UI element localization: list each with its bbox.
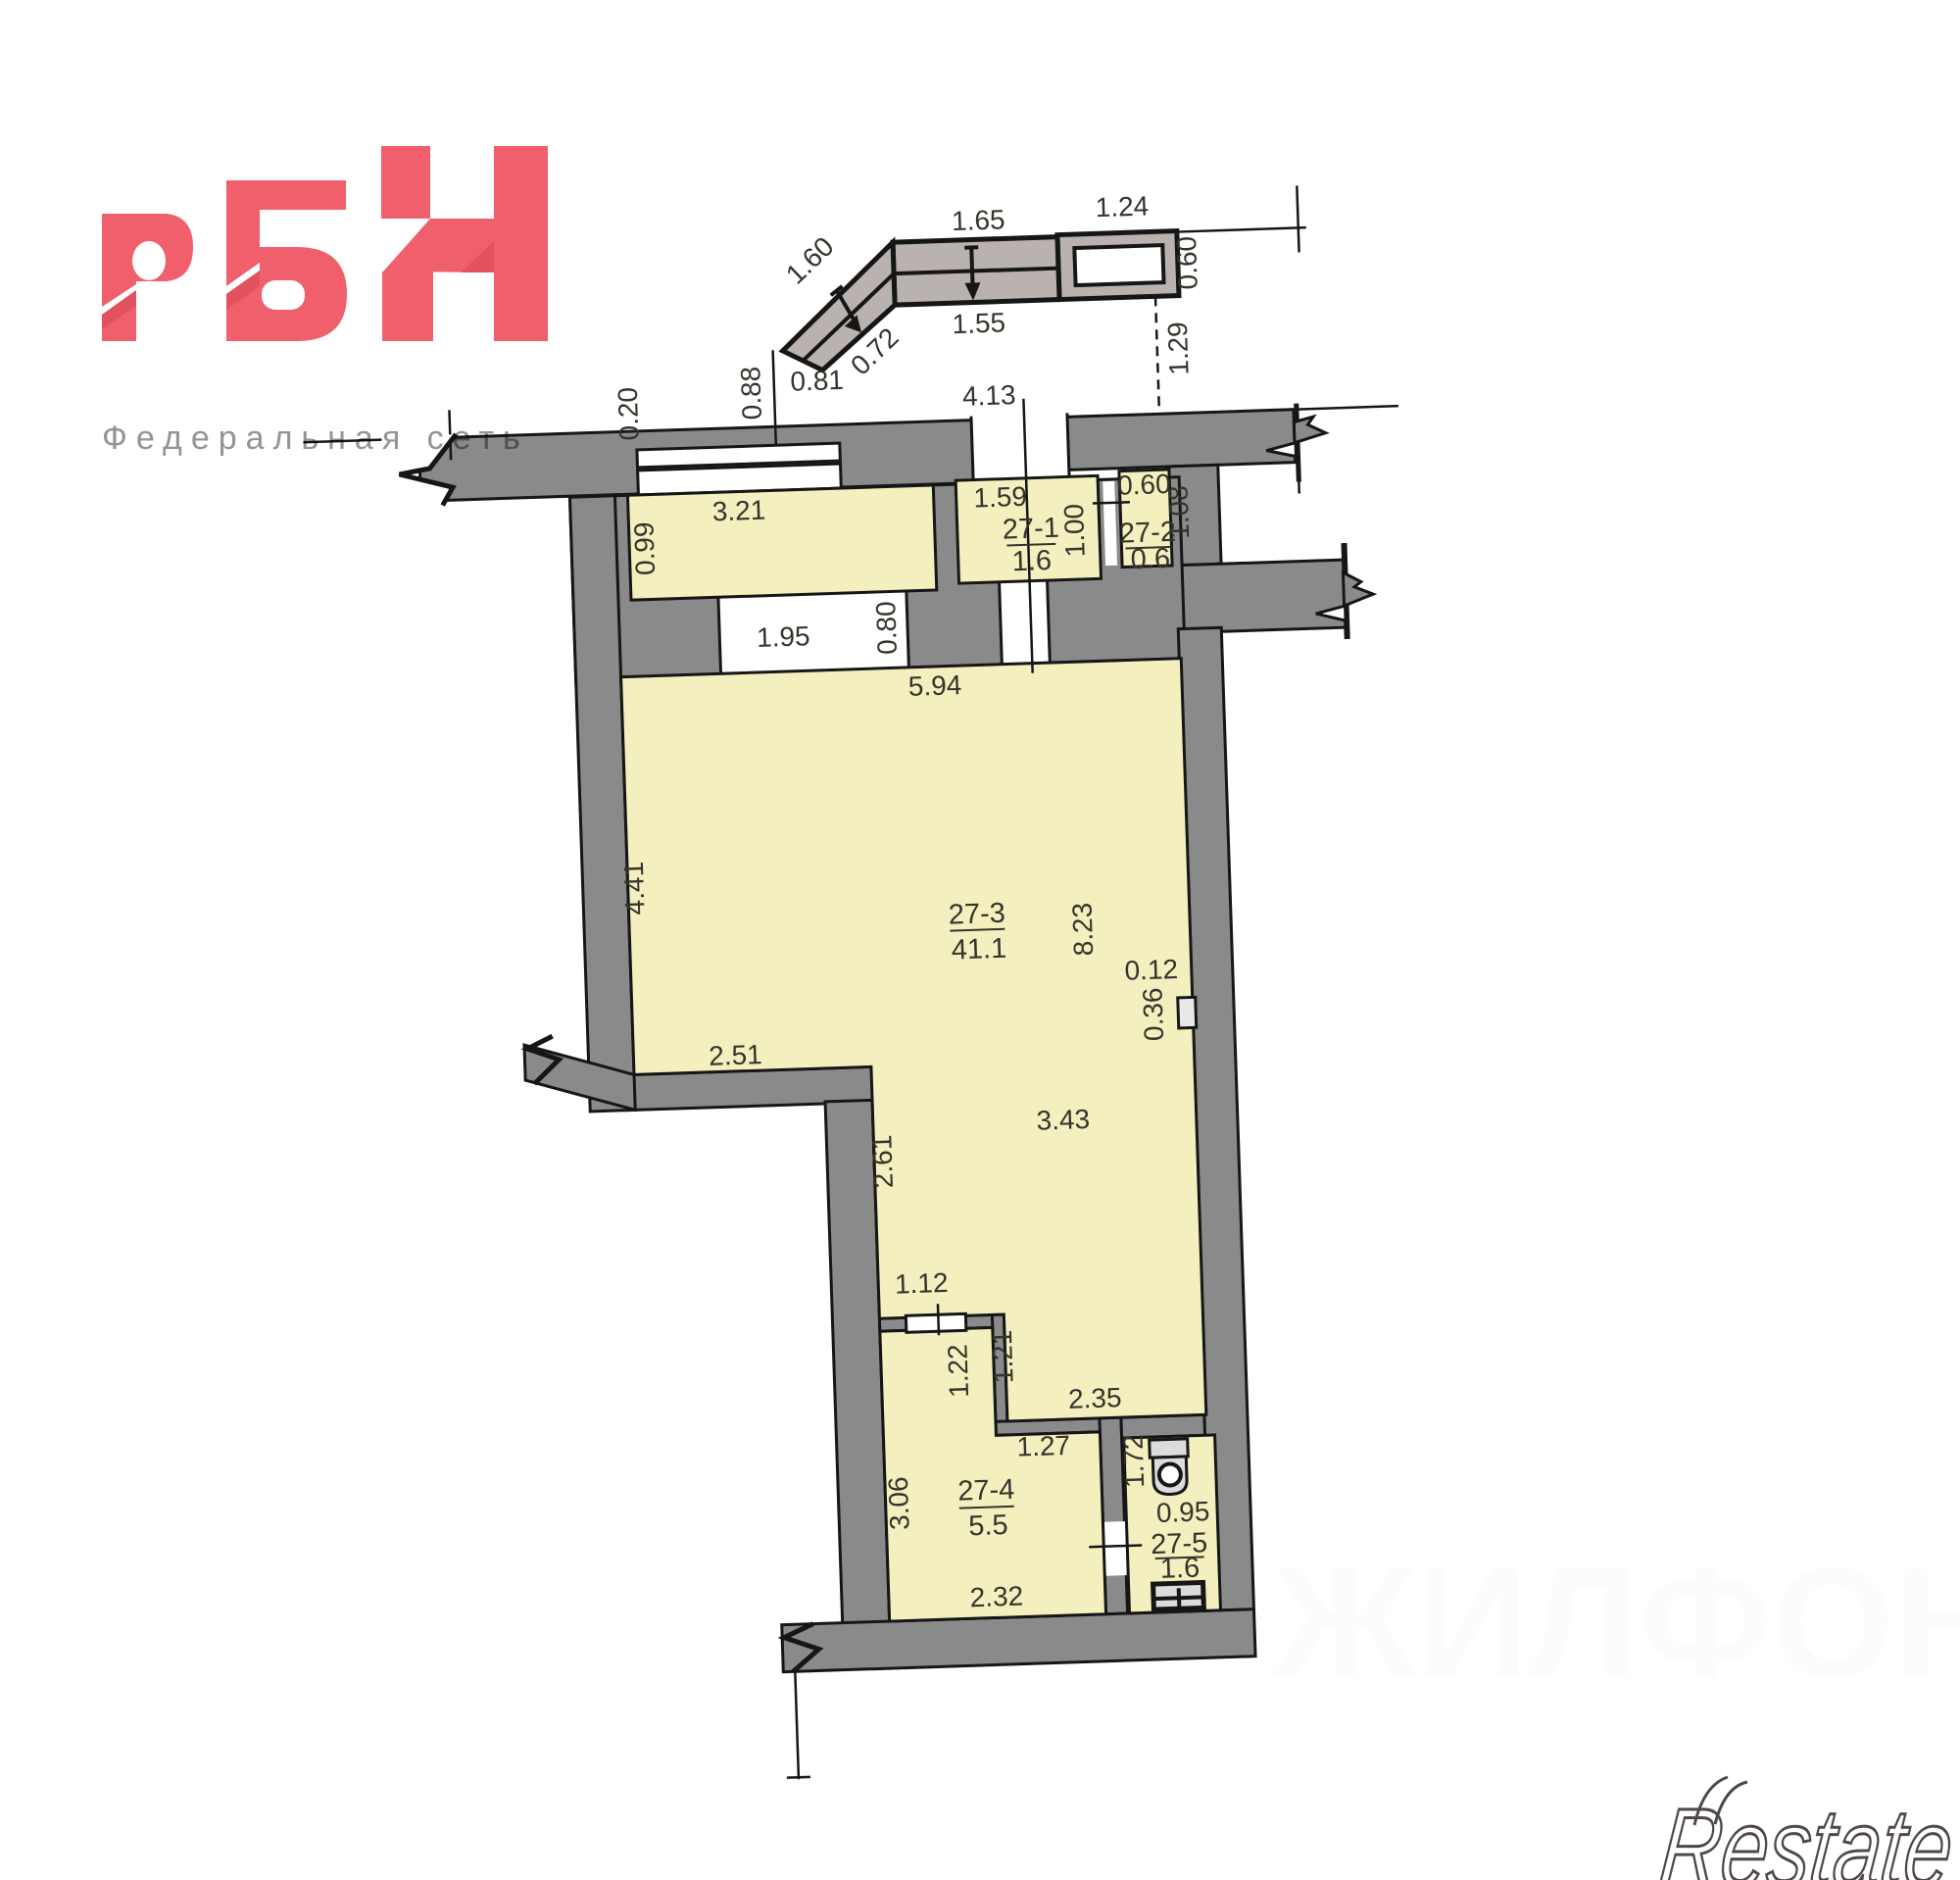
svg-text:0.36: 0.36 [1137, 987, 1169, 1041]
svg-text:8.23: 8.23 [1066, 902, 1099, 956]
svg-text:0.60: 0.60 [1171, 235, 1203, 289]
svg-text:27-3: 27-3 [948, 898, 1005, 931]
svg-text:2.32: 2.32 [969, 1581, 1023, 1613]
svg-text:ЖИЛФОНД: ЖИЛФОНД [1273, 1534, 1960, 1709]
svg-text:0.81: 0.81 [790, 365, 844, 397]
svg-text:1.55: 1.55 [952, 307, 1005, 339]
svg-text:1.22: 1.22 [942, 1344, 974, 1398]
svg-text:27-1: 27-1 [1002, 513, 1059, 546]
svg-text:0.12: 0.12 [1124, 954, 1178, 986]
svg-text:3.43: 3.43 [1036, 1104, 1090, 1136]
svg-text:0.80: 0.80 [870, 601, 903, 655]
svg-text:0.95: 0.95 [1155, 1496, 1209, 1528]
svg-text:1.72: 1.72 [1117, 1434, 1150, 1488]
svg-text:1.12: 1.12 [895, 1267, 949, 1300]
svg-text:0.88: 0.88 [735, 366, 767, 420]
svg-text:2.51: 2.51 [709, 1039, 762, 1071]
svg-text:1.21: 1.21 [987, 1329, 1019, 1383]
svg-text:1.95: 1.95 [757, 620, 810, 653]
svg-text:1.24: 1.24 [1095, 191, 1149, 223]
svg-text:27-4: 27-4 [957, 1474, 1015, 1508]
svg-text:1.27: 1.27 [1016, 1430, 1070, 1462]
svg-text:4.41: 4.41 [618, 862, 651, 915]
svg-text:1.59: 1.59 [973, 481, 1027, 514]
svg-text:Федеральная сеть: Федеральная сеть [102, 420, 529, 457]
svg-text:5.94: 5.94 [907, 669, 961, 702]
svg-text:5.5: 5.5 [968, 1509, 1008, 1542]
svg-text:1.65: 1.65 [952, 204, 1005, 236]
svg-text:3.21: 3.21 [711, 495, 765, 527]
svg-text:1.6: 1.6 [1011, 545, 1052, 577]
svg-text:4.13: 4.13 [962, 379, 1016, 412]
svg-text:0.99: 0.99 [628, 521, 661, 575]
svg-text:2.35: 2.35 [1067, 1382, 1121, 1414]
svg-text:3.06: 3.06 [883, 1476, 915, 1530]
svg-text:41.1: 41.1 [951, 933, 1006, 966]
svg-text:2.61: 2.61 [866, 1134, 899, 1188]
svg-text:1.29: 1.29 [1162, 322, 1195, 375]
svg-text:Restate: Restate [1654, 1785, 1959, 1880]
svg-text:0.20: 0.20 [612, 386, 645, 440]
svg-text:1.00: 1.00 [1058, 503, 1091, 557]
